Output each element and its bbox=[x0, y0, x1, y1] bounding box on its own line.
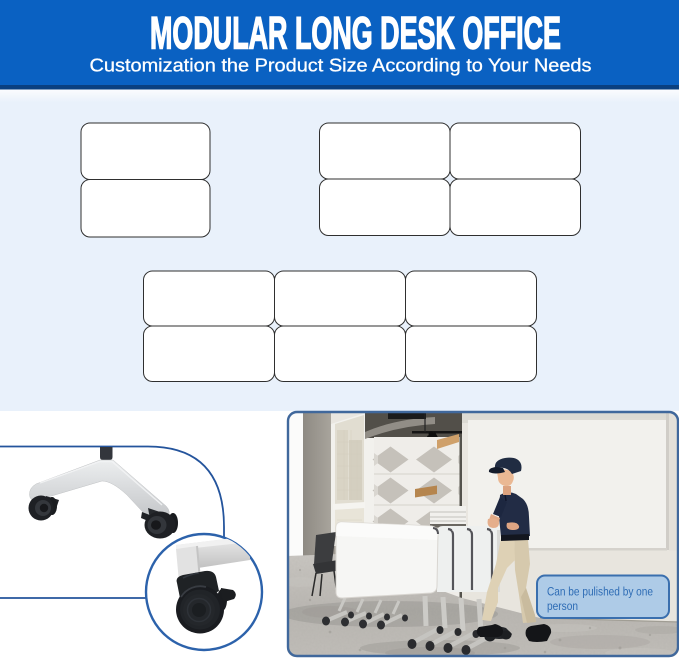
svg-text:person: person bbox=[547, 599, 578, 613]
svg-text:MODULAR LONG DESK OFFICE: MODULAR LONG DESK OFFICE bbox=[150, 8, 561, 59]
svg-text:Customization the Product Size: Customization the Product Size According… bbox=[90, 54, 592, 75]
svg-text:Can be pulished by one: Can be pulished by one bbox=[547, 585, 653, 599]
